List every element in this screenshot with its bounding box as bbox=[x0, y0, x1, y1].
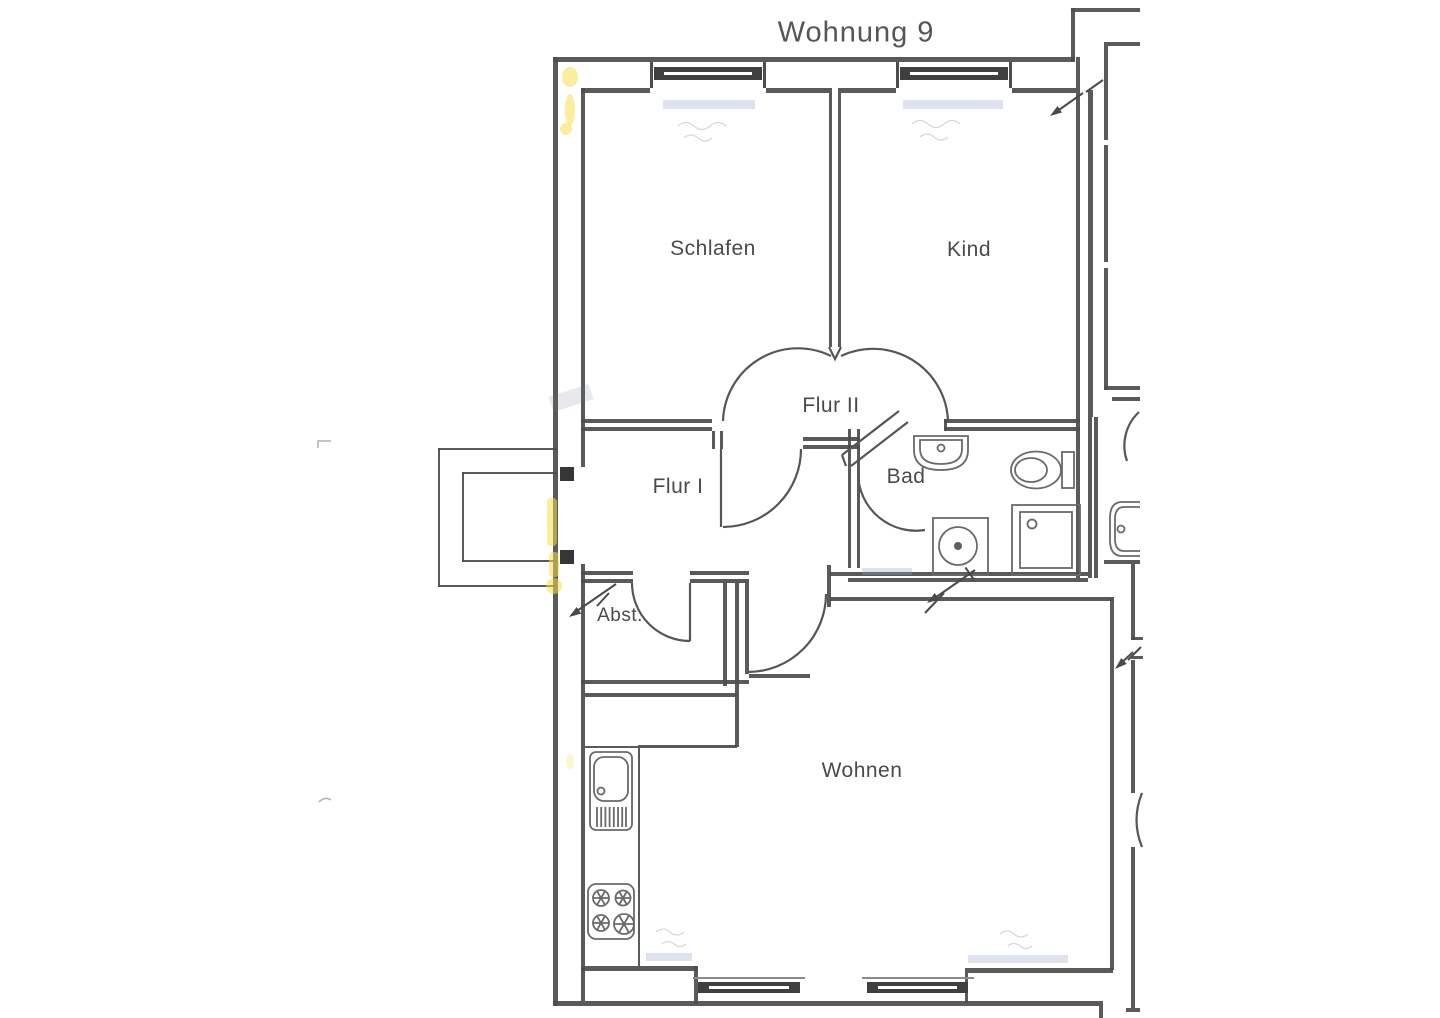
balcony-door-post bbox=[560, 467, 574, 481]
room-label-wohnen: Wohnen bbox=[822, 759, 903, 783]
wohnen-door-arc bbox=[748, 594, 826, 672]
room-label-flur1: Flur I bbox=[653, 475, 704, 499]
kitchen-sink-icon bbox=[590, 752, 632, 830]
washing-machine-icon bbox=[933, 518, 988, 575]
window-top-kind bbox=[896, 62, 1012, 88]
toilet-icon bbox=[1011, 452, 1074, 489]
plan-title: Wohnung 9 bbox=[778, 17, 935, 50]
neighbor-door-arc bbox=[1124, 412, 1139, 461]
window-bottom-right bbox=[862, 977, 974, 993]
room-label-bad: Bad bbox=[887, 465, 926, 489]
divider-notch bbox=[829, 347, 841, 359]
shower-icon bbox=[1012, 505, 1080, 575]
highlighter-marks bbox=[546, 67, 578, 770]
room-label-kind: Kind bbox=[947, 238, 991, 262]
bad-diagonal-wall bbox=[842, 455, 846, 466]
margin-marks bbox=[318, 441, 331, 802]
room-label-schlafen: Schlafen bbox=[670, 237, 756, 261]
neighbor-sink-icon bbox=[1110, 502, 1140, 556]
faded-text-marks bbox=[549, 100, 1068, 963]
balcony-door-post bbox=[560, 550, 574, 564]
stove-icon bbox=[588, 884, 634, 939]
neighbor-door-bracket bbox=[1137, 793, 1143, 847]
flur1-door-arc bbox=[723, 449, 801, 527]
floor-plan-drawing bbox=[0, 0, 1440, 1018]
room-label-abst: Abst. bbox=[597, 605, 643, 627]
interior-walls bbox=[581, 88, 1114, 970]
window-top-schlafen bbox=[650, 62, 766, 88]
exterior-walls bbox=[553, 8, 1140, 1018]
window-bottom-left bbox=[693, 977, 805, 993]
floor-plan: Wohnung 9 Schlafen Kind Flur II Flur I B… bbox=[0, 0, 1440, 1018]
room-label-flur2: Flur II bbox=[802, 394, 859, 418]
